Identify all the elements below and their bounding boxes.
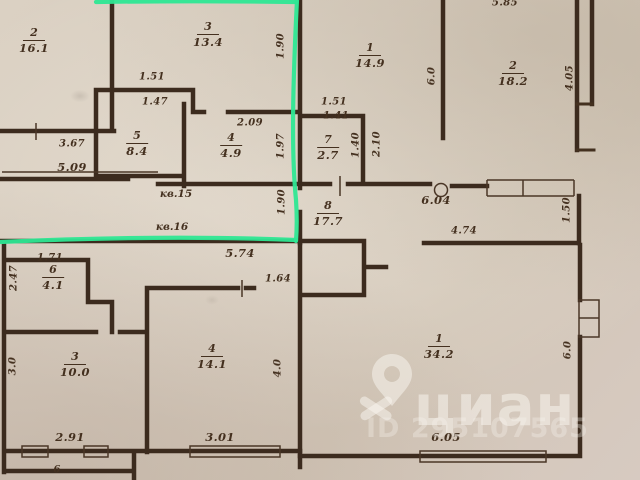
apartment-boundary-highlight [0,0,297,242]
walls-bottom-right-room [300,245,580,456]
floor-plan-drawing [0,0,640,480]
walls-top-right-apartment [303,0,592,243]
built-in-wardrobe [487,180,574,196]
door-post-marker [435,184,448,197]
walls-shaft [577,104,594,150]
walls-bottom-left-apartment [4,243,300,480]
boundary-right [293,0,297,241]
walls-top-left-apartment [0,0,300,243]
boundary-top [96,1,296,2]
floor-plan: 216.1313.458.444.9114.9218.272.7817.764.… [0,0,640,480]
